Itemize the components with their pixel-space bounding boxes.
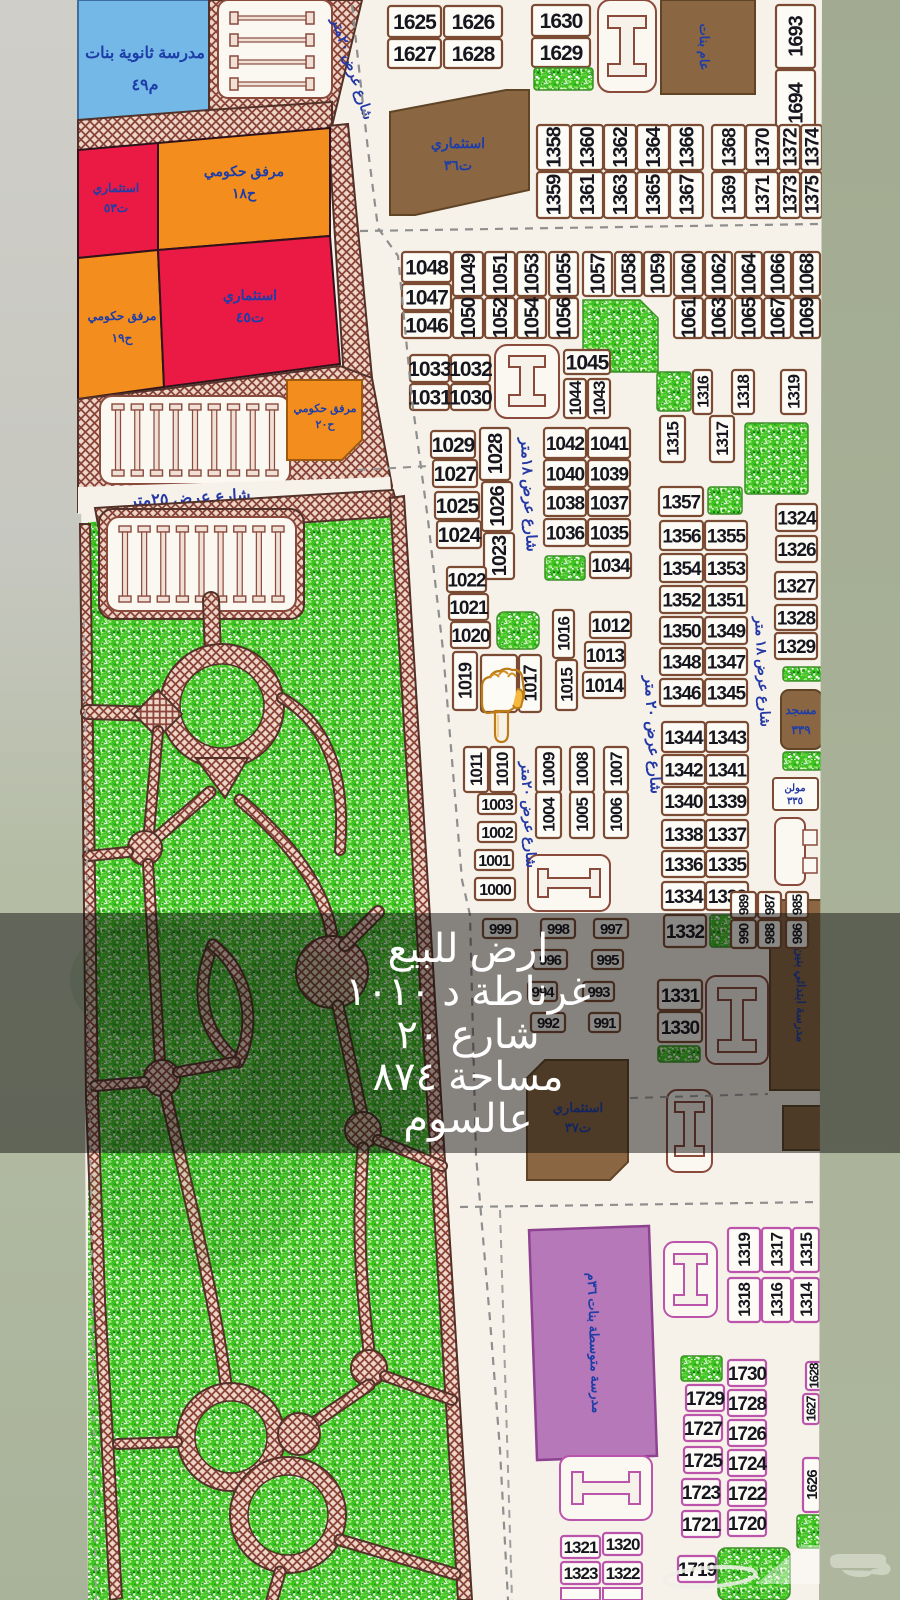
- svg-text:1003: 1003: [481, 797, 514, 814]
- svg-text:1064: 1064: [739, 252, 761, 294]
- svg-text:1011: 1011: [467, 753, 486, 786]
- svg-text:ح٢٠: ح٢٠: [316, 419, 336, 431]
- svg-text:1067: 1067: [768, 297, 790, 338]
- svg-text:1061: 1061: [679, 297, 701, 338]
- svg-text:1725: 1725: [684, 1451, 724, 1472]
- svg-text:1001: 1001: [478, 853, 511, 870]
- svg-text:1341: 1341: [708, 760, 748, 781]
- svg-text:989: 989: [736, 894, 752, 916]
- svg-text:1045: 1045: [566, 352, 610, 375]
- svg-text:1361: 1361: [577, 174, 599, 215]
- svg-text:1009: 1009: [540, 752, 559, 786]
- svg-text:ح١٩: ح١٩: [112, 331, 133, 346]
- svg-text:1030: 1030: [449, 387, 492, 410]
- svg-text:٣٣٩: ٣٣٩: [791, 723, 811, 737]
- svg-text:1057: 1057: [588, 253, 610, 294]
- svg-text:1040: 1040: [546, 464, 585, 485]
- svg-text:1327: 1327: [777, 576, 816, 597]
- svg-text:1023: 1023: [489, 535, 511, 576]
- svg-text:1005: 1005: [573, 798, 592, 832]
- svg-text:1008: 1008: [573, 752, 592, 786]
- svg-text:1367: 1367: [677, 174, 699, 215]
- svg-text:شارع ٢٠: شارع ٢٠: [397, 1013, 540, 1058]
- svg-text:1063: 1063: [709, 297, 731, 338]
- svg-text:1323: 1323: [564, 1564, 598, 1583]
- svg-text:1365: 1365: [643, 174, 665, 215]
- svg-text:1625: 1625: [393, 11, 437, 34]
- svg-text:1369: 1369: [719, 175, 740, 214]
- svg-text:1347: 1347: [707, 652, 746, 673]
- svg-text:استثماري: استثماري: [431, 135, 485, 152]
- svg-text:1058: 1058: [619, 253, 641, 294]
- svg-text:1627: 1627: [804, 1396, 819, 1422]
- svg-text:1047: 1047: [405, 287, 448, 310]
- svg-text:1362: 1362: [610, 126, 632, 167]
- svg-text:1322: 1322: [606, 1564, 640, 1583]
- svg-text:1025: 1025: [436, 495, 480, 518]
- svg-text:ت٣٦: ت٣٦: [444, 157, 472, 173]
- svg-text:1351: 1351: [707, 590, 747, 611]
- svg-text:1326: 1326: [777, 540, 816, 561]
- svg-text:1315: 1315: [664, 422, 683, 456]
- svg-text:1328: 1328: [777, 608, 816, 629]
- svg-text:مولن: مولن: [784, 783, 805, 794]
- svg-text:1054: 1054: [522, 296, 544, 338]
- svg-text:1026: 1026: [487, 485, 509, 526]
- svg-text:1360: 1360: [577, 126, 599, 167]
- svg-text:1336: 1336: [664, 855, 703, 876]
- svg-text:1370: 1370: [753, 128, 774, 167]
- svg-text:1727: 1727: [684, 1419, 723, 1440]
- svg-text:1358: 1358: [544, 126, 566, 167]
- svg-text:1004: 1004: [540, 797, 559, 832]
- svg-text:1627: 1627: [393, 43, 436, 66]
- svg-text:1342: 1342: [664, 760, 703, 781]
- svg-text:1059: 1059: [648, 253, 670, 294]
- svg-text:1724: 1724: [728, 1454, 768, 1475]
- svg-text:مدرسة ثانوية بنات: مدرسة ثانوية بنات: [85, 45, 205, 63]
- svg-text:1316: 1316: [695, 375, 712, 408]
- svg-text:1324: 1324: [777, 508, 817, 529]
- svg-text:1055: 1055: [554, 253, 576, 294]
- svg-text:مرفق حكومي: مرفق حكومي: [293, 403, 356, 416]
- svg-text:1065: 1065: [739, 297, 761, 338]
- svg-text:1366: 1366: [677, 126, 699, 167]
- svg-text:1626: 1626: [804, 1470, 821, 1500]
- svg-text:1021: 1021: [449, 598, 489, 619]
- svg-text:1355: 1355: [707, 526, 747, 547]
- svg-text:1726: 1726: [728, 1424, 767, 1445]
- svg-text:غرناطة د ١٠١٠: غرناطة د ١٠١٠: [345, 970, 591, 1015]
- svg-text:1728: 1728: [728, 1394, 767, 1415]
- svg-text:1043: 1043: [590, 381, 609, 415]
- svg-text:1042: 1042: [546, 434, 585, 455]
- svg-text:1013: 1013: [586, 646, 625, 667]
- svg-text:1329: 1329: [777, 637, 816, 658]
- svg-text:1006: 1006: [607, 798, 626, 832]
- svg-text:1052: 1052: [490, 297, 512, 338]
- svg-text:1060: 1060: [679, 253, 701, 294]
- svg-text:1359: 1359: [544, 174, 566, 215]
- svg-text:1319: 1319: [785, 375, 804, 409]
- svg-text:985: 985: [789, 894, 805, 916]
- svg-text:1044: 1044: [566, 380, 585, 415]
- svg-text:1343: 1343: [708, 728, 747, 749]
- svg-text:استثماري: استثماري: [93, 181, 139, 196]
- svg-text:1346: 1346: [662, 683, 701, 704]
- svg-text:1694: 1694: [786, 81, 808, 123]
- svg-text:مساحة ٨٧٤: مساحة ٨٧٤: [372, 1055, 563, 1099]
- svg-text:٣٣٥: ٣٣٥: [787, 796, 803, 807]
- svg-text:1012: 1012: [591, 616, 630, 637]
- svg-text:1024: 1024: [438, 524, 482, 547]
- svg-text:1050: 1050: [458, 297, 480, 338]
- svg-text:1007: 1007: [607, 752, 626, 786]
- svg-text:1317: 1317: [768, 1233, 787, 1267]
- svg-text:1372: 1372: [780, 128, 801, 167]
- svg-text:ت٥٣: ت٥٣: [104, 201, 128, 215]
- svg-text:م٤٩: م٤٩: [131, 77, 158, 95]
- svg-text:1049: 1049: [458, 253, 480, 294]
- svg-text:1320: 1320: [606, 1535, 640, 1554]
- svg-text:1693: 1693: [786, 15, 808, 56]
- svg-text:1046: 1046: [405, 315, 448, 338]
- svg-text:1334: 1334: [664, 887, 704, 908]
- svg-text:1033: 1033: [408, 358, 451, 381]
- svg-text:1318: 1318: [734, 375, 753, 409]
- svg-text:ح١٨: ح١٨: [232, 185, 257, 202]
- svg-text:1337: 1337: [708, 825, 747, 846]
- svg-text:1720: 1720: [728, 1514, 767, 1535]
- svg-text:ت٤٥: ت٤٥: [236, 309, 264, 325]
- svg-text:1053: 1053: [522, 253, 544, 294]
- svg-text:1364: 1364: [643, 125, 665, 167]
- svg-text:1354: 1354: [662, 559, 702, 580]
- svg-text:1730: 1730: [728, 1364, 767, 1385]
- svg-text:1010: 1010: [493, 752, 512, 786]
- svg-text:1628: 1628: [452, 43, 496, 66]
- svg-text:1316: 1316: [768, 1283, 787, 1317]
- svg-text:1037: 1037: [590, 493, 629, 514]
- svg-text:1363: 1363: [610, 174, 632, 215]
- svg-text:1626: 1626: [452, 11, 495, 34]
- svg-text:1729: 1729: [686, 1389, 725, 1410]
- svg-text:1721: 1721: [682, 1515, 722, 1536]
- svg-text:1350: 1350: [662, 621, 701, 642]
- svg-text:1028: 1028: [485, 433, 507, 474]
- svg-text:1629: 1629: [540, 42, 583, 65]
- svg-text:1032: 1032: [449, 358, 492, 381]
- svg-text:1319: 1319: [735, 1233, 754, 1267]
- svg-text:1020: 1020: [451, 626, 490, 647]
- svg-text:مسجد: مسجد: [785, 703, 816, 717]
- svg-text:1069: 1069: [797, 297, 819, 338]
- svg-text:1031: 1031: [408, 387, 452, 410]
- svg-text:1014: 1014: [585, 676, 625, 697]
- svg-text:1002: 1002: [481, 825, 514, 842]
- svg-text:1317: 1317: [713, 422, 732, 456]
- svg-text:1356: 1356: [662, 526, 701, 547]
- svg-text:مرفق حكومي: مرفق حكومي: [204, 163, 284, 180]
- svg-text:1068: 1068: [797, 253, 819, 294]
- svg-text:عالسوم: عالسوم: [403, 1097, 532, 1142]
- svg-text:1035: 1035: [590, 523, 630, 544]
- svg-text:1348: 1348: [662, 652, 701, 673]
- svg-text:1349: 1349: [707, 621, 746, 642]
- svg-text:1036: 1036: [546, 523, 585, 544]
- svg-text:1338: 1338: [664, 825, 703, 846]
- svg-text:1019: 1019: [455, 662, 475, 699]
- svg-text:1048: 1048: [405, 257, 449, 280]
- svg-text:1335: 1335: [708, 855, 748, 876]
- svg-text:1022: 1022: [447, 570, 486, 591]
- svg-text:1353: 1353: [707, 559, 746, 580]
- svg-text:1722: 1722: [728, 1484, 767, 1505]
- svg-text:1034: 1034: [591, 556, 631, 577]
- svg-text:1373: 1373: [780, 175, 801, 214]
- svg-text:عام بنات: عام بنات: [696, 23, 712, 70]
- svg-text:1066: 1066: [768, 253, 790, 294]
- svg-text:1056: 1056: [554, 297, 576, 338]
- svg-text:1051: 1051: [490, 253, 512, 294]
- svg-text:1321: 1321: [564, 1538, 598, 1557]
- svg-text:1371: 1371: [753, 174, 774, 214]
- svg-text:1016: 1016: [555, 617, 574, 651]
- svg-text:1340: 1340: [664, 792, 703, 813]
- svg-text:1039: 1039: [590, 464, 629, 485]
- svg-text:1038: 1038: [546, 493, 585, 514]
- svg-text:1318: 1318: [735, 1283, 754, 1317]
- svg-text:1315: 1315: [797, 1233, 816, 1267]
- svg-text:987: 987: [762, 894, 778, 916]
- svg-text:1345: 1345: [707, 683, 747, 704]
- svg-text:ارض للبيع: ارض للبيع: [388, 927, 549, 972]
- svg-text:1015: 1015: [558, 668, 577, 702]
- svg-text:1352: 1352: [662, 590, 701, 611]
- svg-text:1630: 1630: [540, 10, 583, 33]
- svg-text:1339: 1339: [708, 792, 747, 813]
- svg-text:1368: 1368: [719, 128, 740, 167]
- svg-text:1344: 1344: [664, 728, 704, 749]
- svg-text:1723: 1723: [682, 1483, 721, 1504]
- svg-text:1375: 1375: [802, 174, 823, 214]
- svg-text:1374: 1374: [802, 127, 823, 167]
- svg-text:1314: 1314: [797, 1282, 816, 1317]
- svg-text:1027: 1027: [434, 463, 477, 486]
- svg-text:استثماري: استثماري: [223, 287, 277, 304]
- svg-text:مرفق حكومي: مرفق حكومي: [88, 309, 157, 324]
- svg-text:1000: 1000: [479, 882, 512, 899]
- svg-text:1029: 1029: [432, 434, 475, 457]
- svg-text:1357: 1357: [662, 492, 701, 513]
- svg-text:1041: 1041: [590, 434, 630, 455]
- svg-text:1062: 1062: [709, 253, 731, 294]
